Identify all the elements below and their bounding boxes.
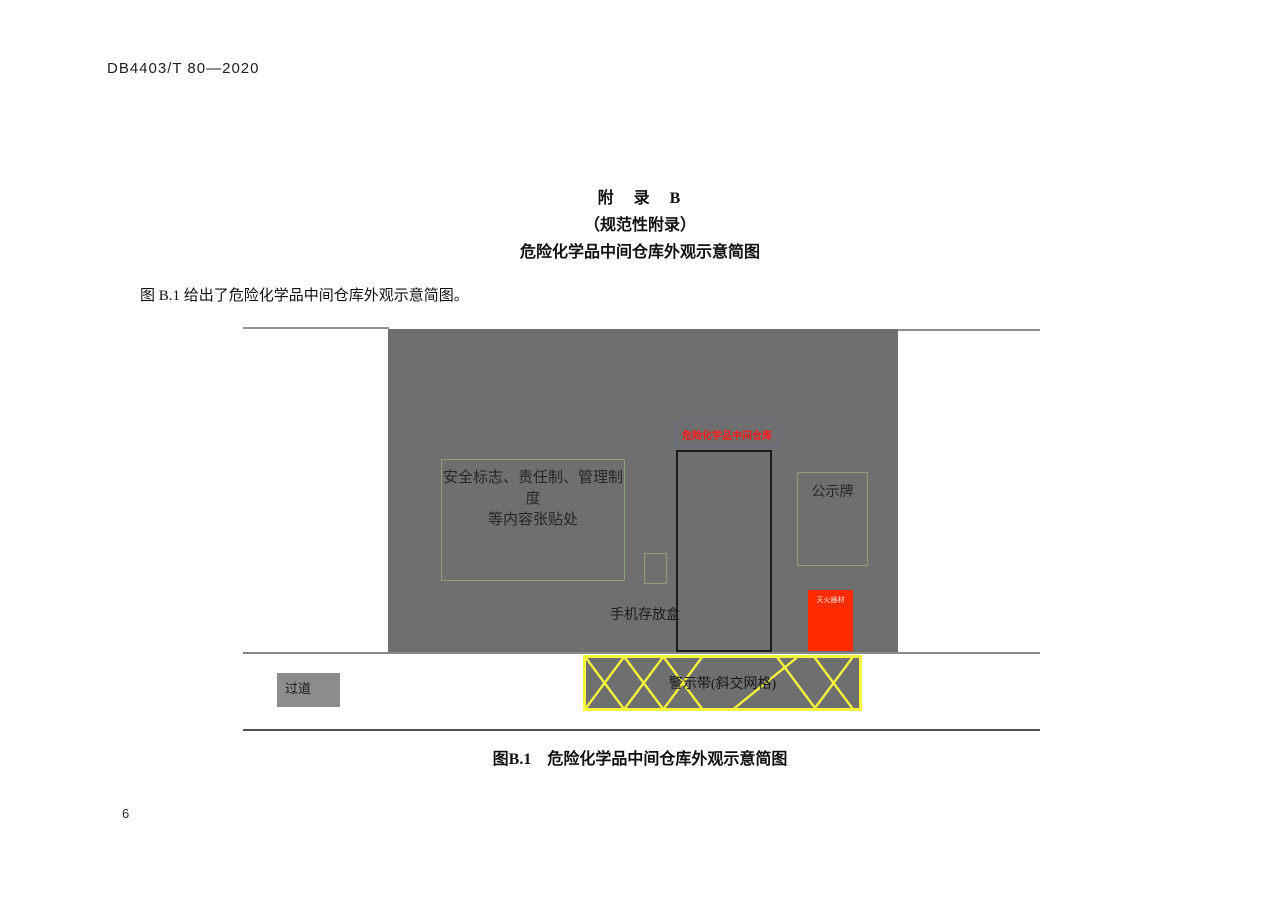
posting-area-box: 安全标志、责任制、管理制度 等内容张贴处 bbox=[441, 459, 625, 581]
fire-equipment-label: 灭火器材 bbox=[817, 596, 845, 604]
ground-line-top-right bbox=[898, 329, 1040, 331]
posting-area-label-line2: 等内容张贴处 bbox=[442, 510, 624, 531]
notice-board-box: 公示牌 bbox=[797, 472, 868, 566]
warning-tape-area: 警示带(斜交网格) bbox=[583, 655, 862, 711]
appendix-subheading: （规范性附录） bbox=[0, 211, 1280, 235]
passage-box: 过道 bbox=[277, 673, 340, 707]
ground-line-top-left bbox=[243, 327, 389, 329]
door-sign-plate: 危险化学品中间仓库 bbox=[675, 421, 779, 447]
page-number: 6 bbox=[122, 806, 129, 821]
warning-tape-label: 警示带(斜交网格) bbox=[669, 673, 776, 693]
document-number: DB4403/T 80—2020 bbox=[107, 60, 260, 77]
phone-storage-box bbox=[644, 553, 667, 584]
figure-bottom-rule bbox=[243, 729, 1040, 731]
notice-board-label: 公示牌 bbox=[812, 485, 854, 500]
posting-area-label-line1: 安全标志、责任制、管理制度 bbox=[442, 468, 624, 510]
ground-line bbox=[243, 652, 1040, 654]
figure-caption: 图B.1 危险化学品中间仓库外观示意简图 bbox=[0, 745, 1280, 769]
phone-storage-label: 手机存放盒 bbox=[590, 604, 700, 624]
door-sign-label: 危险化学品中间仓库 bbox=[682, 427, 772, 442]
passage-label: 过道 bbox=[285, 681, 311, 696]
intro-paragraph: 图 B.1 给出了危险化学品中间仓库外观示意简图。 bbox=[140, 284, 469, 305]
fire-equipment-box: 灭火器材 bbox=[808, 590, 853, 651]
warehouse-diagram: 安全标志、责任制、管理制度 等内容张贴处 危险化学品中间仓库 公示牌 手机存放盒… bbox=[243, 325, 1040, 737]
appendix-title: 危险化学品中间仓库外观示意简图 bbox=[0, 238, 1280, 262]
appendix-heading: 附 录 B bbox=[0, 184, 1280, 208]
